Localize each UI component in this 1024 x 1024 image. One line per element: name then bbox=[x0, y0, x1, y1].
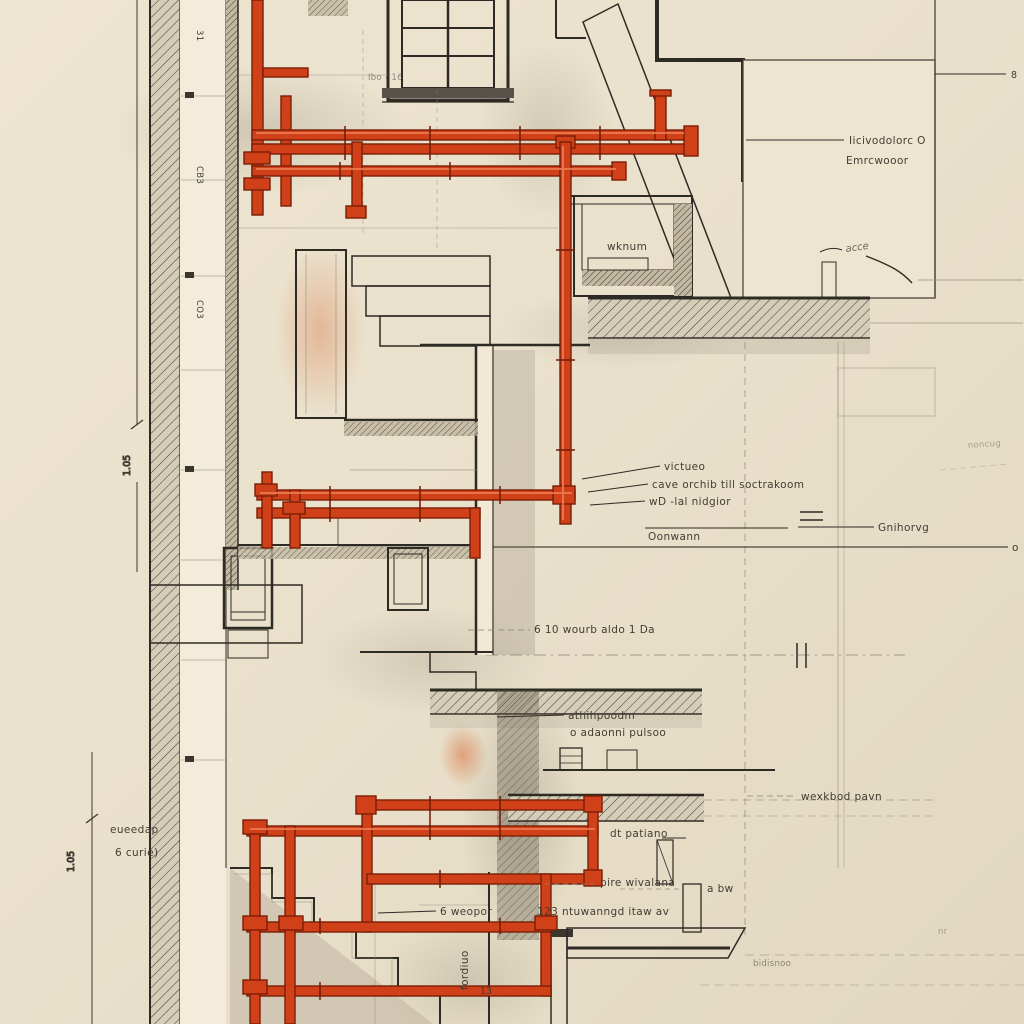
note-left-2: 6 curie) bbox=[115, 847, 158, 859]
window-note: Ibo - 16 bbox=[368, 73, 403, 83]
room-label: wknum bbox=[607, 241, 647, 253]
note-right-mid: Gnihorvg bbox=[878, 522, 929, 534]
note-left-1: eueedap bbox=[110, 824, 159, 836]
note-pipes-2: cave orchib till soctrakoom bbox=[652, 479, 804, 491]
pipe-run-bot-1 bbox=[362, 800, 598, 810]
note-bottom-2: pire wivalana bbox=[600, 877, 675, 889]
note-small-number: 13 bbox=[480, 986, 492, 997]
note-mid-dashed: 6 10 wourb aldo 1 Da bbox=[534, 624, 655, 636]
note-pipes-3: wD -lal nidgior bbox=[649, 496, 731, 508]
right-edge-marker: 8 bbox=[1011, 70, 1017, 81]
right-floor-band bbox=[588, 298, 870, 354]
pipe-run-mid-1 bbox=[257, 490, 575, 500]
datum-end-marker: o bbox=[1012, 542, 1019, 554]
dimension-left-lower: 1.05 bbox=[66, 851, 77, 872]
pipe-drop-center bbox=[560, 142, 571, 524]
note-right-floor: wexkbod pavn bbox=[801, 791, 882, 803]
note-bottom-3: a bw bbox=[707, 883, 734, 895]
note-upper-right-1: Iicivodolorc O bbox=[849, 135, 926, 147]
note-upper-right-2: Emrcwooor bbox=[846, 155, 909, 167]
wall-tick-2: CB3 bbox=[194, 166, 204, 184]
note-floor-2: o adaonni pulsoo bbox=[570, 727, 666, 739]
note-bottom-4: 123 ntuwanngd itaw av bbox=[537, 906, 669, 918]
wall-tick-1: 31 bbox=[194, 30, 204, 41]
drawing-canvas: 1.05 1.05 31 CB3 CO3 bbox=[0, 0, 1024, 1024]
note-pipes-1: victueo bbox=[664, 461, 705, 473]
pipe-run-top-1 bbox=[252, 130, 688, 140]
wall-tick-3: CO3 bbox=[194, 300, 204, 319]
pipe-run-bot-3 bbox=[367, 874, 593, 884]
dimension-left-upper: 1.05 bbox=[122, 455, 133, 476]
note-bottom-vertical: fordiuo bbox=[459, 950, 471, 990]
note-bottom-1: dt patiano bbox=[610, 828, 668, 840]
note-floor-1: athihpoodm bbox=[568, 710, 635, 722]
note-faint-bottom: bidisnoo bbox=[753, 959, 791, 969]
pipe-run-top-2 bbox=[252, 144, 688, 154]
note-bottom-5: 6 weopor bbox=[440, 906, 492, 918]
note-datum: Oonwann bbox=[648, 531, 700, 543]
pipe-run-bot-2 bbox=[247, 826, 598, 836]
architectural-section-sketch: 1.05 1.05 31 CB3 CO3 bbox=[0, 0, 1024, 1024]
note-faint-bottom-right: nr bbox=[938, 927, 948, 937]
window-sill bbox=[382, 88, 514, 98]
